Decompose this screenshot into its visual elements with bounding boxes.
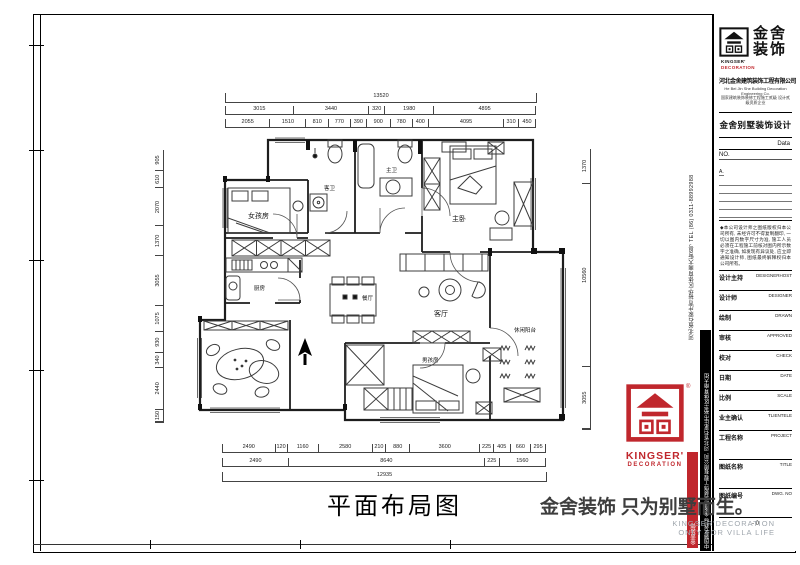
field-label-en: TLIENTELE (768, 413, 792, 418)
field-label: 业主确认 (719, 413, 743, 422)
dim-value: 210 (373, 444, 387, 453)
dim-value: 405 (494, 444, 511, 453)
field-label-en: DESIGNERHOST (756, 273, 792, 278)
field-label-en: DESIGNER (768, 293, 792, 298)
room-label-kitchen: 厨房 (254, 284, 266, 292)
kingser-red-logo: KINGSER' DECORATION (620, 384, 690, 468)
brand-logo-sub2: DECORATION (721, 65, 792, 70)
room-label-guest-bath: 客卫 (324, 184, 336, 192)
field-label-en: SCALE (777, 393, 792, 398)
field-label-en: CHECK (776, 353, 792, 358)
data-label: Data (719, 138, 792, 150)
dim-value: 610 (155, 171, 164, 188)
dim-value: 400 (413, 119, 429, 128)
field-label-en: DRAWN (775, 313, 792, 318)
room-label-master-bath: 主卫 (386, 166, 398, 174)
field-label-en: TITLE (780, 462, 792, 467)
blank-rule (719, 194, 792, 202)
dim-value: 310 (504, 119, 519, 128)
title-block-fields: 设计主持DESIGNERHOST 设计师DESIGNER 绘制DRAWN 审核A… (719, 271, 792, 518)
room-label-girl-room: 女孩房 (248, 211, 269, 220)
border-tick (29, 370, 44, 371)
no-label: NO. (719, 150, 792, 160)
dim-top-row2: 3015344032019804895 (225, 106, 536, 115)
sheet-border-bottom-line (33, 544, 712, 545)
border-tick (29, 480, 44, 481)
field-label-en: DATE (780, 373, 792, 378)
copyright-disclaimer: ◆本公司设计师之图纸版权归本公司所有, 未经许可不得复制翻印, 一切以图内数字尺… (719, 220, 792, 271)
company-credential: 国家建筑装饰装修工程施工贰级 设计贰级资质企业 (719, 96, 792, 105)
dim-value: 3015 (226, 106, 294, 115)
dim-value: 880 (386, 444, 410, 453)
dim-value: 450 (519, 119, 536, 128)
blank-rule (719, 210, 792, 218)
dim-value: 810 (306, 119, 328, 128)
border-tick (29, 45, 44, 46)
field-clientele: 业主确认TLIENTELE (719, 411, 792, 431)
doors (273, 188, 518, 368)
dim-value: 3055 (155, 256, 164, 306)
field-label: 日期 (719, 373, 731, 382)
field-approved: 审核APPROVED (719, 331, 792, 351)
dim-value: 1510 (270, 119, 306, 128)
dim-value: 3600 (410, 444, 480, 453)
dim-value: 1370 (582, 149, 591, 184)
red-logo-name: KINGSER' (620, 450, 690, 462)
boy-room-furniture (346, 345, 501, 414)
brand-name-line1: 金舍 (753, 26, 787, 42)
hall-wardrobe (232, 240, 330, 256)
dim-value: 2055 (226, 119, 270, 128)
room-label-living: 客厅 (434, 309, 448, 318)
interior-walls (225, 140, 533, 420)
brand-logo: 金舍 装饰 (719, 26, 792, 58)
field-scale: 比例SCALE (719, 391, 792, 411)
dim-value: 2490 (223, 458, 289, 467)
dim-bottom-row1: 2490120116025802108803600225405660295 (222, 444, 546, 453)
dim-value: 340 (155, 353, 164, 367)
field-label: 工程名称 (719, 433, 743, 442)
dim-value: 10560 (582, 184, 591, 367)
dim-value: 905 (155, 150, 164, 171)
dim-value: 2440 (155, 368, 164, 410)
red-logo-sub: DECORATION (620, 462, 690, 468)
field-label-en: PROJECT (771, 433, 792, 438)
living-room-furniture (400, 254, 488, 343)
field-label: 图纸名称 (719, 462, 743, 471)
dim-value: 295 (531, 444, 546, 453)
dim-top-overall: 13520 (225, 93, 537, 103)
master-bath-fixtures (358, 140, 412, 196)
dim-top-row3: 205515108107703909007804004095310450 (225, 119, 536, 128)
border-tick (450, 540, 451, 549)
border-tick (150, 540, 151, 549)
dim-value: 780 (391, 119, 413, 128)
dim-value: 1980 (385, 106, 434, 115)
dim-left-chain: 90561020701370305510759303402440150 (155, 150, 164, 423)
dim-value: 120 (276, 444, 288, 453)
leisure-balcony-items (500, 346, 540, 402)
dim-value: 4095 (429, 119, 504, 128)
sheet-border-inner-line (40, 14, 41, 551)
dim-value: 4895 (434, 106, 536, 115)
blank-rule (719, 178, 792, 186)
slogan-en-line2: ONLY FOR VILLA LIFE (540, 528, 775, 537)
dim-bottom-row2: 249086402251560 (222, 458, 546, 467)
room-label-master-bedroom: 主卧 (452, 214, 466, 223)
registered-mark: ® (686, 384, 690, 390)
field-drawn: 绘制DRAWN (719, 311, 792, 331)
guest-bath-fixtures (310, 140, 342, 211)
brand-slogan: 金舍装饰 只为别墅而生。 KINGSER'DECORATION ONLY FOR… (540, 492, 775, 537)
dim-value: 930 (155, 332, 164, 353)
field-project: 工程名称PROJECT (719, 431, 792, 460)
room-label-leisure-balcony: 休闲阳台 (514, 326, 537, 334)
title-block: 金舍 装饰 KINGSER' DECORATION 河北金舍建筑装饰工程有限公司… (712, 14, 796, 551)
north-arrow-icon (298, 338, 312, 365)
field-designerhost: 设计主持DESIGNERHOST (719, 271, 792, 291)
dim-value: 1370 (155, 227, 164, 257)
field-label: 比例 (719, 393, 731, 402)
field-label-en: APPROVED (767, 333, 792, 338)
dim-value: 150 (155, 410, 164, 422)
slogan-zh: 金舍装饰 只为别墅而生。 (540, 492, 775, 519)
brand-name-line2: 装饰 (753, 42, 787, 58)
slogan-en-line1: KINGSER'DECORATION (540, 519, 775, 528)
dim-value: 2490 (223, 444, 276, 453)
dim-value: 900 (367, 119, 391, 128)
dim-right-chain: 1370105603055 (582, 149, 591, 430)
field-title: 图纸名称TITLE (719, 460, 792, 489)
border-tick (29, 260, 44, 261)
kitchen-fixtures (226, 258, 302, 300)
kingser-logo-mark-icon (719, 27, 749, 57)
field-date: 日期DATE (719, 371, 792, 391)
revision-rows: A. (719, 160, 792, 178)
room-label-dining: 餐厅 (362, 294, 374, 302)
dim-value: 1560 (500, 458, 546, 467)
drawing-title: 平面布局图 (327, 486, 462, 521)
dim-value: 3440 (294, 106, 369, 115)
field-label: 设计师 (719, 293, 737, 302)
dim-value: 1075 (155, 306, 164, 332)
dim-value: 2580 (319, 444, 373, 453)
floor-plan-svg: 客卫 主卫 主卧 女孩房 厨房 餐厅 客厅 休闲阳台 男孩房 (140, 88, 570, 438)
room-label-boy-room: 男孩房 (422, 356, 439, 364)
dim-value: 770 (329, 119, 351, 128)
dim-value: 3055 (582, 367, 591, 429)
left-balcony-items (204, 321, 288, 399)
field-label: 设计主持 (719, 273, 743, 282)
dim-value: A. (719, 169, 724, 176)
dim-value: 8640 (289, 458, 485, 467)
dim-value: 660 (511, 444, 532, 453)
dim-value: 2070 (155, 189, 164, 227)
dim-value: 1160 (288, 444, 319, 453)
field-label: 校对 (719, 353, 731, 362)
field-label: 绘制 (719, 313, 731, 322)
border-tick (300, 540, 301, 549)
blank-rule (719, 202, 792, 210)
border-tick (29, 150, 44, 151)
brand-logo-sub1: KINGSER' (721, 59, 792, 64)
dim-value: 225 (480, 444, 494, 453)
dim-value: 225 (485, 458, 500, 467)
dim-value: 390 (351, 119, 367, 128)
master-bedroom-furniture (424, 142, 533, 240)
field-check: 校对CHECK (719, 351, 792, 371)
girl-room-furniture (228, 188, 303, 233)
kingser-red-logo-mark-icon (626, 384, 684, 442)
address-tel-strip: 河北省石家庄市裕华区体育南大街6号 TEL (86) 0311-88992988 (688, 55, 696, 340)
dim-bottom-overall: 12935 (222, 472, 547, 482)
field-label: 审核 (719, 333, 731, 342)
blank-rule (719, 186, 792, 194)
dim-value: 320 (369, 106, 385, 115)
field-designer: 设计师DESIGNER (719, 291, 792, 311)
company-name: 河北金舍建筑装饰工程有限公司 (719, 76, 792, 85)
division-title: 金舍别墅装饰设计 (719, 112, 792, 138)
